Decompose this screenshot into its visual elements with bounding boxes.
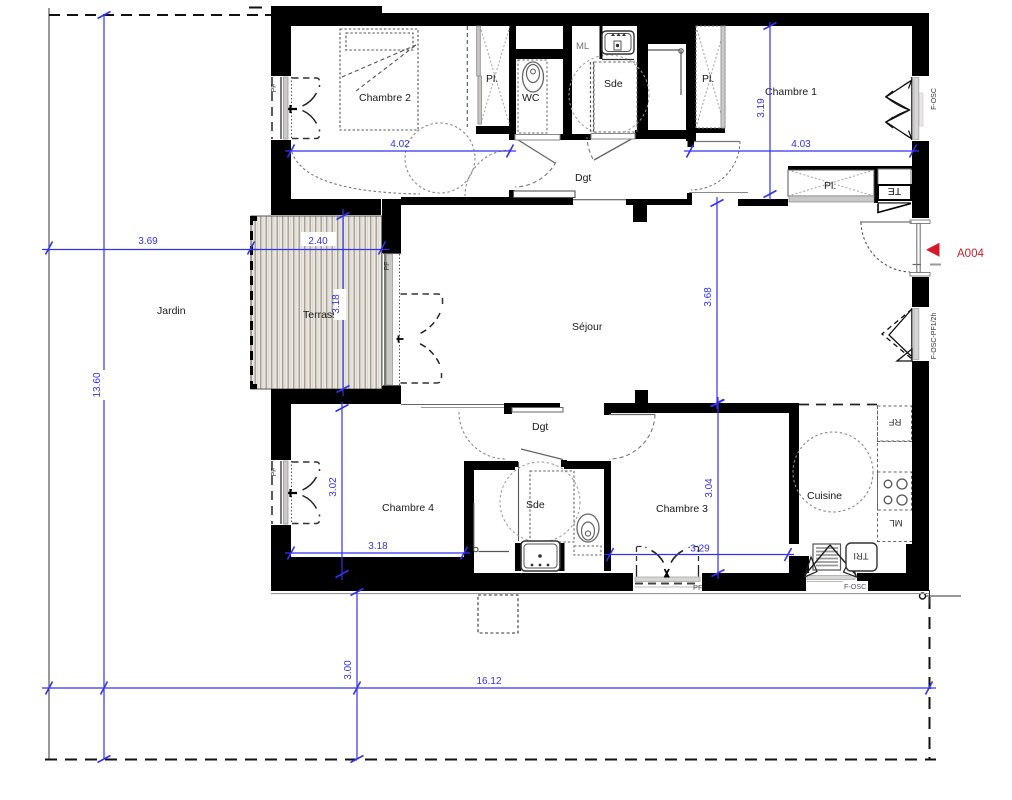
- svg-text:13.60: 13.60: [92, 372, 103, 397]
- svg-text:TRI: TRI: [853, 550, 868, 561]
- svg-text:RF: RF: [888, 416, 901, 427]
- svg-text:Séjour: Séjour: [572, 321, 603, 333]
- svg-text:Sde: Sde: [604, 78, 623, 90]
- svg-text:Pl.: Pl.: [702, 73, 714, 85]
- svg-text:3.69: 3.69: [138, 236, 158, 247]
- svg-text:Chambre 3: Chambre 3: [656, 503, 708, 515]
- svg-text:3.00: 3.00: [343, 660, 354, 680]
- svg-text:A004: A004: [957, 248, 984, 260]
- svg-text:3.18: 3.18: [331, 294, 342, 314]
- svg-text:TE: TE: [888, 185, 901, 197]
- svg-text:ML: ML: [889, 517, 902, 528]
- svg-text:3.02: 3.02: [328, 477, 339, 497]
- svg-text:16.12: 16.12: [476, 676, 501, 687]
- svg-text:F-OSC-PF1/2h: F-OSC-PF1/2h: [931, 313, 938, 360]
- svg-text:Pl.: Pl.: [486, 73, 498, 85]
- svg-text:3.19: 3.19: [756, 98, 767, 118]
- svg-text:F-OSC: F-OSC: [931, 88, 938, 110]
- svg-text:Dgt: Dgt: [532, 421, 548, 433]
- svg-text:2.40: 2.40: [308, 236, 328, 247]
- svg-text:F-OSC: F-OSC: [844, 582, 866, 591]
- svg-text:PF: PF: [693, 583, 703, 592]
- svg-text:Chambre 2: Chambre 2: [359, 92, 411, 104]
- svg-text:3.68: 3.68: [703, 287, 714, 307]
- svg-text:Dgt: Dgt: [575, 172, 591, 184]
- svg-text:Cuisine: Cuisine: [807, 490, 842, 502]
- svg-text:3.04: 3.04: [704, 478, 715, 498]
- svg-text:Jardin: Jardin: [157, 305, 186, 317]
- svg-text:3.18: 3.18: [368, 541, 388, 552]
- svg-text:PF: PF: [271, 84, 278, 93]
- svg-text:ML: ML: [576, 41, 589, 52]
- svg-text:Pl.: Pl.: [824, 180, 836, 192]
- svg-text:PF: PF: [271, 468, 278, 477]
- svg-text:PF: PF: [384, 262, 391, 271]
- svg-text:3.29: 3.29: [690, 544, 710, 555]
- svg-text:Sde: Sde: [526, 499, 545, 511]
- svg-text:4.03: 4.03: [791, 139, 811, 150]
- svg-text:Chambre 4: Chambre 4: [382, 502, 434, 514]
- svg-text:4.02: 4.02: [390, 139, 410, 150]
- svg-text:WC: WC: [522, 92, 540, 104]
- svg-text:Chambre 1: Chambre 1: [765, 86, 817, 98]
